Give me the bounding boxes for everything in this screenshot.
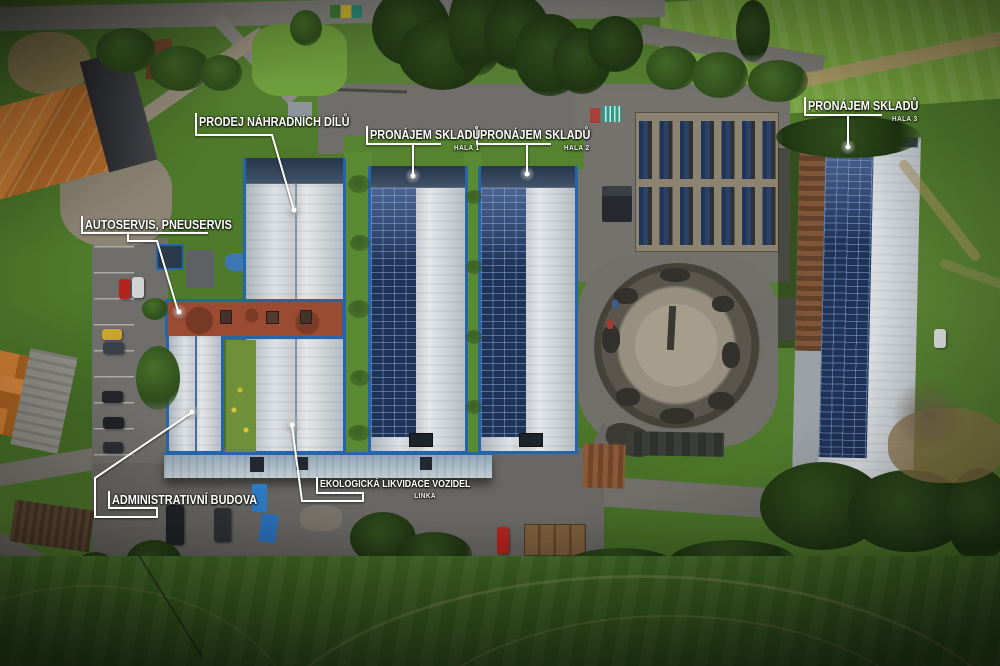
- annotation-label-pronajem-skladu-hala-3: PRONÁJEM SKLADŮHALA 3: [808, 99, 918, 123]
- annotation-subtext: HALA 1: [370, 144, 480, 152]
- annotation-label-pronajem-skladu-hala-2: PRONÁJEM SKLADŮHALA 2: [480, 128, 590, 152]
- annotation-label-pronajem-skladu-hala-1: PRONÁJEM SKLADŮHALA 1: [370, 128, 480, 152]
- annotation-label-administrativni-budova: ADMINISTRATIVNÍ BUDOVA: [112, 493, 257, 508]
- annotation-text: PRONÁJEM SKLADŮ: [480, 128, 590, 143]
- annotation-subtext: HALA 3: [808, 115, 918, 123]
- annotation-label-autoservis-pneuservis: AUTOSERVIS, PNEUSERVIS: [85, 218, 232, 233]
- annotation-text: EKOLOGICKÁ LIKVIDACE VOZIDEL: [320, 479, 470, 491]
- annotation-label-ekologicka-likvidace-vozidel: EKOLOGICKÁ LIKVIDACE VOZIDELLINKA: [320, 479, 470, 500]
- annotation-text: PRODEJ NÁHRADNÍCH DÍLŮ: [199, 115, 349, 130]
- annotation-subtext: LINKA: [320, 492, 470, 500]
- annotation-label-prodej-nahradnich-dilu: PRODEJ NÁHRADNÍCH DÍLŮ: [199, 115, 349, 130]
- annotation-text: PRONÁJEM SKLADŮ: [808, 99, 918, 114]
- annotation-layer: PRODEJ NÁHRADNÍCH DÍLŮPRONÁJEM SKLADŮHAL…: [0, 0, 1000, 666]
- annotation-text: AUTOSERVIS, PNEUSERVIS: [85, 218, 232, 233]
- annotation-subtext: HALA 2: [480, 144, 590, 152]
- annotation-text: ADMINISTRATIVNÍ BUDOVA: [112, 493, 257, 508]
- annotation-text: PRONÁJEM SKLADŮ: [370, 128, 480, 143]
- aerial-photo: PRODEJ NÁHRADNÍCH DÍLŮPRONÁJEM SKLADŮHAL…: [0, 0, 1000, 666]
